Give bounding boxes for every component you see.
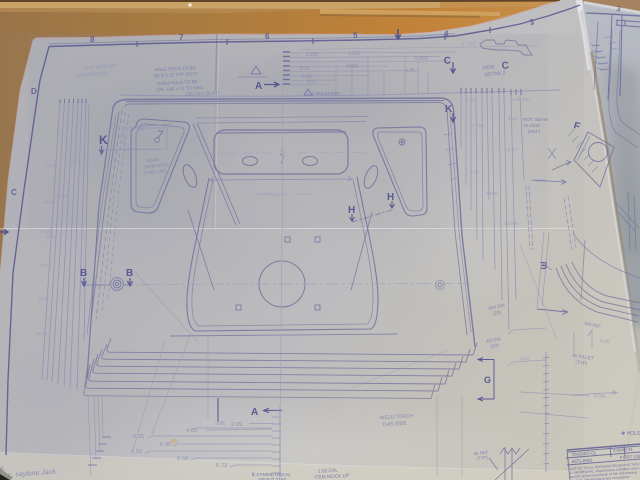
svg-text:B: B [126,268,133,279]
svg-text:7.50: 7.50 [68,158,77,163]
svg-text:6.40: 6.40 [160,442,171,448]
svg-text:APPROXIMATE: APPROXIMATE [257,192,288,197]
svg-text:C: C [501,60,509,72]
svg-text:2.09: 2.09 [231,422,242,428]
svg-text:1.25: 1.25 [405,68,415,74]
svg-text:70.2343: 70.2343 [523,123,540,128]
svg-text:11.04: 11.04 [40,263,51,268]
svg-text:K: K [99,133,108,147]
svg-text:6.26: 6.26 [133,434,144,440]
svg-text:A: A [255,81,262,92]
svg-text:5.060: 5.060 [415,56,428,62]
svg-text:6: 6 [265,32,270,41]
svg-text:D: D [31,87,37,96]
svg-text:6.59: 6.59 [177,456,188,462]
svg-text:6.12: 6.12 [470,169,479,174]
svg-text:15.80: 15.80 [36,331,48,336]
svg-text:e.: e. [0,466,5,472]
svg-text:1.67 DIA: 1.67 DIA [512,97,531,102]
svg-text:11.23: 11.23 [46,163,57,168]
svg-text:6.000: 6.000 [486,191,498,196]
svg-text:9.46: 9.46 [508,116,517,121]
svg-text:2.350.04 REF: 2.350.04 REF [312,91,341,96]
svg-text:6.250: 6.250 [306,52,319,58]
svg-text:8: 8 [90,35,95,44]
svg-text:C: C [443,55,451,67]
svg-text:1.25: 1.25 [466,97,475,102]
svg-text:10.940: 10.940 [504,221,518,226]
svg-text:3.45: 3.45 [508,147,517,152]
svg-text:5.25: 5.25 [300,66,310,72]
svg-text:(1.25): (1.25) [57,193,69,198]
svg-text:4: 4 [444,30,449,39]
svg-text:(REF): (REF) [528,129,541,134]
svg-text:7: 7 [179,33,184,42]
svg-text:6.50: 6.50 [131,449,142,455]
svg-text:13.10: 13.10 [38,296,50,301]
svg-text:2.060: 2.060 [472,123,484,128]
svg-text:11.84: 11.84 [44,200,55,205]
svg-text:H: H [387,192,394,203]
svg-text:4.060: 4.060 [346,64,359,70]
svg-text:✱ HOLD: ✱ HOLD [621,431,640,437]
svg-text:K: K [445,104,453,115]
svg-text:ROT. SEAM: ROT. SEAM [523,117,548,122]
svg-text:6.73: 6.73 [216,463,227,469]
svg-text:G: G [484,375,491,385]
svg-text:SLOT: SLOT [46,234,58,239]
svg-text:B: B [80,268,87,279]
svg-text:C: C [11,188,17,197]
svg-text:2.02 CAL: 2.02 CAL [318,468,339,475]
svg-text:4.03: 4.03 [186,428,197,434]
svg-text:4.250: 4.250 [348,51,361,57]
svg-text:A: A [251,407,258,418]
svg-text:5: 5 [353,31,358,40]
svg-text:4.51: 4.51 [307,79,317,85]
